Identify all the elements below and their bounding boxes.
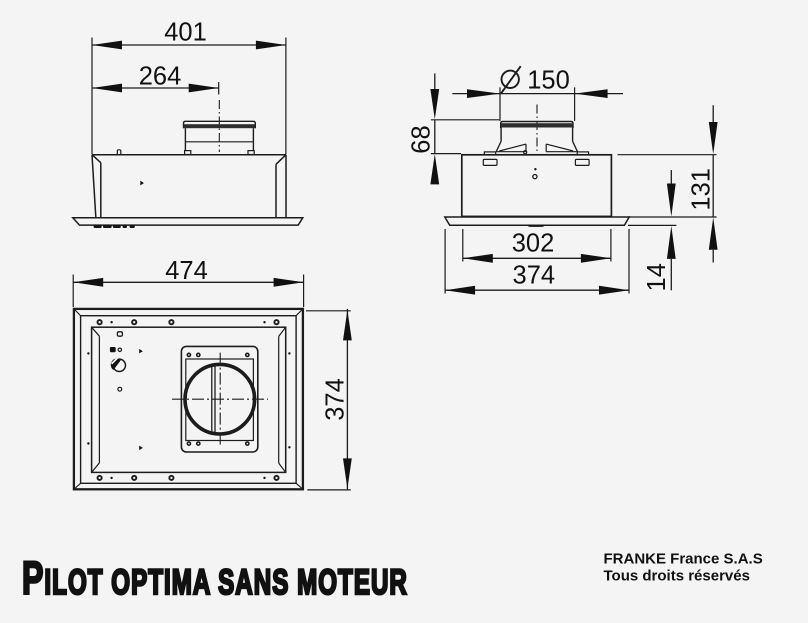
svg-text:Tous droits réservés: Tous droits réservés [604, 568, 750, 585]
svg-text:150: 150 [527, 67, 570, 95]
svg-text:302: 302 [512, 230, 555, 258]
svg-text:131: 131 [688, 168, 716, 211]
svg-text:474: 474 [165, 257, 208, 285]
svg-text:14: 14 [643, 263, 671, 291]
svg-text:401: 401 [164, 19, 207, 47]
svg-text:374: 374 [513, 262, 556, 290]
svg-text:264: 264 [139, 62, 182, 90]
svg-text:PILOT OPTIMA SANS MOTEUR: PILOT OPTIMA SANS MOTEUR [22, 553, 408, 604]
svg-text:68: 68 [408, 125, 436, 153]
svg-text:374: 374 [322, 378, 350, 421]
svg-text:FRANKE France S.A.S: FRANKE France S.A.S [604, 551, 763, 568]
